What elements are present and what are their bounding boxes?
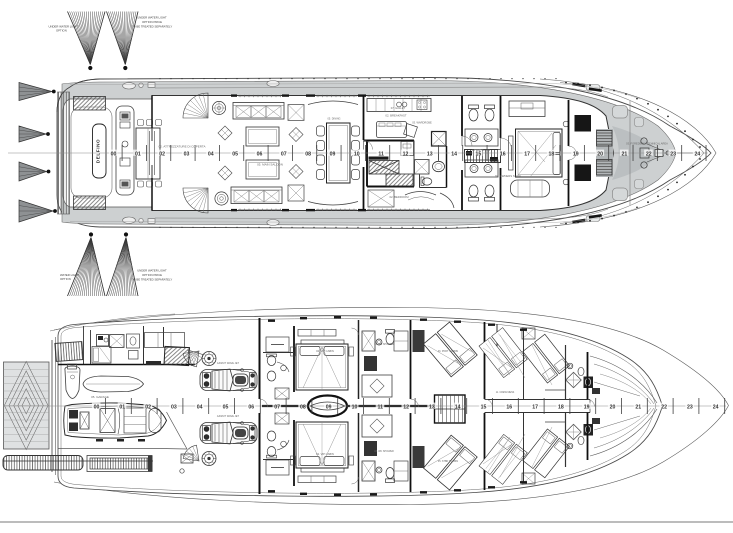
svg-text:05. DINING: 05. DINING — [328, 118, 341, 121]
svg-text:01: 01 — [119, 404, 125, 410]
svg-text:15: 15 — [476, 151, 482, 157]
svg-text:05. STBD T.CABIN: 05. STBD T.CABIN — [438, 460, 458, 463]
svg-text:20: 20 — [597, 151, 603, 157]
svg-text:22: 22 — [661, 404, 667, 410]
svg-text:03. PORT T.CABIN: 03. PORT T.CABIN — [438, 350, 459, 353]
svg-text:OPTION PRICE: OPTION PRICE — [142, 273, 162, 277]
svg-text:24: 24 — [695, 151, 701, 157]
svg-text:UNDER WATER LIGHT: UNDER WATER LIGHT — [137, 16, 167, 20]
svg-text:08: 08 — [300, 404, 306, 410]
svg-text:05: 05 — [223, 404, 229, 410]
svg-text:07: 07 — [274, 404, 280, 410]
svg-text:07: 07 — [281, 151, 287, 157]
svg-text:16: 16 — [506, 404, 512, 410]
svg-text:18: 18 — [549, 151, 555, 157]
svg-text:19: 19 — [573, 151, 579, 157]
svg-text:03: 03 — [184, 151, 190, 157]
svg-text:03. BATHROOM: 03. BATHROOM — [472, 149, 490, 152]
svg-text:03. WARDROBE: 03. WARDROBE — [412, 121, 432, 125]
svg-text:04: 04 — [208, 151, 214, 157]
svg-text:13: 13 — [429, 404, 435, 410]
svg-text:12: 12 — [403, 151, 409, 157]
svg-text:21: 21 — [635, 404, 641, 410]
svg-text:02: 02 — [159, 151, 165, 157]
svg-text:05. MAIN SALOON: 05. MAIN SALOON — [257, 163, 283, 167]
svg-text:20: 20 — [610, 404, 616, 410]
svg-text:17: 17 — [532, 404, 538, 410]
svg-text:11: 11 — [378, 151, 384, 157]
svg-text:00: 00 — [94, 404, 100, 410]
svg-text:15: 15 — [481, 404, 487, 410]
svg-text:10: 10 — [352, 404, 358, 410]
svg-text:OPTION: OPTION — [60, 277, 71, 281]
svg-text:05: 05 — [232, 151, 238, 157]
svg-text:03: 03 — [171, 404, 177, 410]
svg-text:02. ATTREZZATURE DI COPERTA: 02. ATTREZZATURE DI COPERTA — [159, 145, 206, 149]
svg-text:13: 13 — [427, 151, 433, 157]
svg-text:09: 09 — [326, 404, 332, 410]
svg-text:11. CREW MESS: 11. CREW MESS — [496, 391, 515, 394]
svg-text:02. OWNERS SUITE: 02. OWNERS SUITE — [495, 174, 521, 178]
svg-text:TO BE TREATED SEPARATELY: TO BE TREATED SEPARATELY — [132, 25, 173, 29]
svg-text:21: 21 — [622, 151, 628, 157]
svg-text:11: 11 — [378, 404, 384, 410]
svg-text:OPTION: OPTION — [56, 29, 67, 33]
svg-text:06: 06 — [257, 151, 263, 157]
svg-text:03. WC SHOWER: 03. WC SHOWER — [374, 343, 394, 346]
svg-text:03. FOREDECK TECHNICAL AREA: 03. FOREDECK TECHNICAL AREA — [626, 142, 668, 146]
svg-text:DELFINO: DELFINO — [96, 139, 101, 163]
svg-text:UNDER WATER LIGHT: UNDER WATER LIGHT — [137, 269, 167, 273]
svg-text:17: 17 — [524, 151, 530, 157]
svg-text:02. VIP CABIN: 02. VIP CABIN — [316, 349, 334, 353]
svg-text:18: 18 — [558, 404, 564, 410]
svg-text:02. VIP CABIN: 02. VIP CABIN — [316, 452, 334, 456]
svg-text:OPTION PRICE: OPTION PRICE — [142, 20, 162, 24]
svg-text:22: 22 — [646, 151, 652, 157]
svg-text:06: 06 — [248, 404, 254, 410]
svg-text:24: 24 — [713, 404, 719, 410]
svg-text:05. GARAGE: 05. GARAGE — [91, 395, 109, 399]
svg-text:14: 14 — [451, 151, 457, 157]
svg-text:19: 19 — [584, 404, 590, 410]
svg-text:02. BEDROOM: 02. BEDROOM — [389, 195, 409, 199]
svg-text:08: 08 — [305, 151, 311, 157]
svg-text:AZIMUT WAVE JET: AZIMUT WAVE JET — [217, 415, 240, 418]
svg-text:10: 10 — [354, 151, 360, 157]
svg-text:AZIMUT WAVE JET: AZIMUT WAVE JET — [217, 362, 240, 365]
svg-text:12: 12 — [403, 404, 409, 410]
svg-text:23: 23 — [670, 151, 676, 157]
svg-text:14: 14 — [455, 404, 461, 410]
svg-text:23: 23 — [687, 404, 693, 410]
svg-text:07. GALLEY: 07. GALLEY — [391, 106, 406, 110]
svg-text:09: 09 — [330, 151, 336, 157]
svg-text:00: 00 — [111, 151, 117, 157]
svg-text:04: 04 — [197, 404, 203, 410]
svg-text:03. WC SHOWER: 03. WC SHOWER — [374, 450, 394, 453]
svg-text:16: 16 — [500, 151, 506, 157]
svg-text:01: 01 — [135, 151, 141, 157]
svg-text:TO BE TREATED SEPARATELY: TO BE TREATED SEPARATELY — [132, 278, 173, 282]
svg-text:02: 02 — [145, 404, 151, 410]
svg-text:02. BREAKFAST: 02. BREAKFAST — [385, 114, 406, 118]
